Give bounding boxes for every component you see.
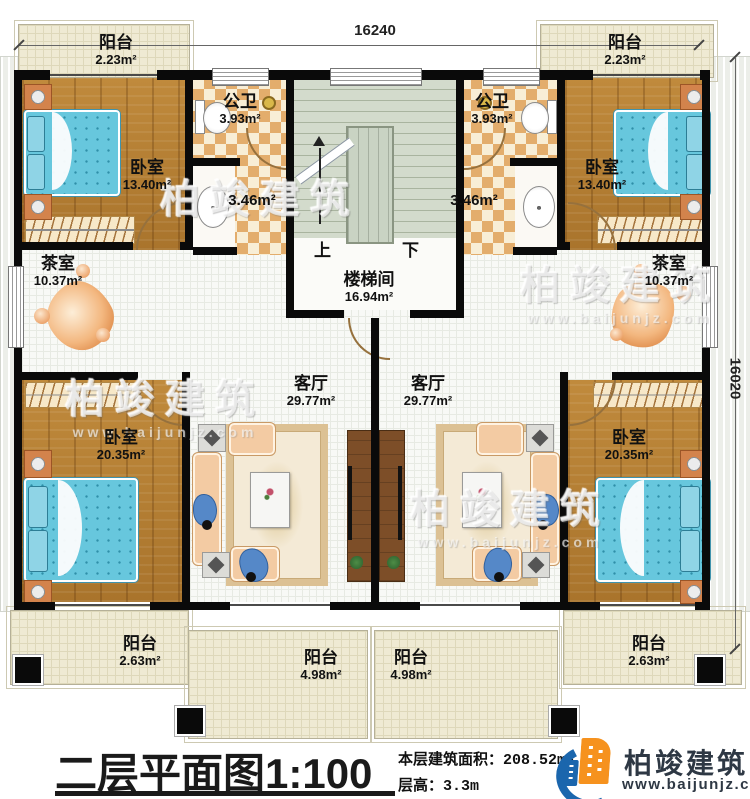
stair-up-label: 上 (314, 236, 331, 261)
label-bedroom-bottom-right: 卧室20.35m² (605, 428, 653, 462)
room-area: 29.77m² (404, 394, 452, 409)
window (212, 68, 269, 86)
label-balcony-bottom-center-right: 阳台4.98m² (390, 648, 431, 682)
room-name: 卧室 (123, 158, 171, 178)
room-name: 楼梯间 (344, 270, 395, 290)
closet-bottom-left (25, 382, 139, 408)
wall (286, 310, 344, 318)
label-vanity-right: 3.46m² (450, 192, 498, 209)
wall (557, 70, 565, 250)
brand-url: www.baijunjz.com (622, 776, 750, 793)
label-tea-left: 茶室10.37m² (34, 254, 82, 288)
label-balcony-bottom-left: 阳台2.63m² (119, 634, 160, 668)
armchair (228, 422, 276, 456)
person-head (494, 572, 504, 582)
room-area: 3.46m² (450, 192, 498, 209)
toilet-right (521, 102, 549, 134)
wall (14, 372, 138, 380)
nightstand (24, 580, 52, 604)
person-head (202, 520, 212, 530)
wall (193, 158, 240, 166)
pebble (610, 328, 623, 341)
window (702, 266, 718, 348)
logo-building (578, 738, 611, 784)
wall (557, 242, 570, 250)
side-table (198, 424, 226, 452)
room-name: 阳台 (119, 634, 160, 654)
label-bath-left: 公卫3.93m² (219, 92, 260, 126)
room-name: 阳台 (300, 648, 341, 668)
room-name: 客厅 (287, 374, 335, 394)
room-area: 4.98m² (300, 668, 341, 683)
side-table (202, 552, 230, 578)
sink-left (197, 186, 229, 228)
stair-arrow-up-icon (313, 136, 325, 146)
room-area: 13.40m² (123, 178, 171, 193)
pillar (549, 706, 579, 736)
room-name: 茶室 (645, 254, 693, 274)
party-wall (371, 318, 379, 602)
wall (520, 602, 600, 610)
room-name: 卧室 (578, 158, 626, 178)
balcony-bottom-center-right (374, 630, 558, 739)
room-name: 卧室 (605, 428, 653, 448)
room-area: 10.37m² (34, 274, 82, 289)
person-head (246, 572, 256, 582)
pillar (695, 655, 725, 685)
side-table-top (204, 430, 221, 447)
room-area: 2.63m² (119, 654, 160, 669)
sliding-door (230, 604, 330, 606)
floor-height-value: 3.3m (443, 778, 479, 795)
room-name: 公卫 (471, 92, 512, 112)
room-name: 阳台 (604, 33, 645, 53)
label-bedroom-bottom-left: 卧室20.35m² (97, 428, 145, 462)
logo-building-side (563, 760, 579, 786)
room-area: 29.77m² (287, 394, 335, 409)
wall (286, 70, 294, 318)
stair-direction-line (319, 148, 321, 224)
wall (14, 242, 133, 250)
nightstand (24, 450, 52, 478)
plant (387, 556, 400, 569)
side-table-top (532, 430, 549, 447)
wall (14, 602, 55, 610)
label-tea-right: 茶室10.37m² (645, 254, 693, 288)
label-balcony-bottom-right: 阳台2.63m² (628, 634, 669, 668)
nightstand (24, 84, 52, 110)
room-area: 10.37m² (645, 274, 693, 289)
side-table-top (208, 557, 225, 574)
label-bedroom-top-left: 卧室13.40m² (123, 158, 171, 192)
closet-top-left (25, 216, 135, 244)
room-name: 公卫 (219, 92, 260, 112)
room-name: 客厅 (404, 374, 452, 394)
tv-right (398, 466, 402, 540)
sliding-door (593, 74, 700, 76)
room-area: 20.35m² (97, 448, 145, 463)
sliding-door (55, 604, 150, 606)
pebble (96, 328, 110, 342)
title-underline (55, 791, 395, 796)
wall (185, 70, 193, 250)
nightstand (24, 194, 52, 220)
wall (410, 310, 464, 318)
wall (330, 602, 420, 610)
label-living-right: 客厅29.77m² (404, 374, 452, 408)
label-balcony-top-right: 阳台2.23m² (604, 33, 645, 67)
wall (538, 70, 593, 80)
pebble (34, 308, 50, 324)
floor-height-stat: 层高：3.3m (398, 774, 479, 795)
wall (420, 70, 483, 80)
room-area: 2.23m² (604, 53, 645, 68)
wall (510, 158, 557, 166)
room-name: 阳台 (390, 648, 431, 668)
label-vanity-left: 3.46m² (228, 192, 276, 209)
pillow (680, 486, 700, 528)
wall (695, 602, 710, 610)
room-area: 2.63m² (628, 654, 669, 669)
room-area: 3.93m² (219, 112, 260, 127)
side-table (522, 552, 550, 578)
label-bath-right: 公卫3.93m² (471, 92, 512, 126)
room-area: 16.94m² (344, 290, 395, 305)
tv-left (348, 466, 352, 540)
pillow (680, 530, 700, 572)
wall (560, 372, 568, 610)
wall (267, 70, 330, 80)
wall (150, 602, 230, 610)
pillow (28, 530, 48, 572)
room-name: 卧室 (97, 428, 145, 448)
floor-area-label: 本层建筑面积： (398, 751, 503, 768)
sliding-door (50, 74, 157, 76)
window (8, 266, 24, 348)
side-table-top (528, 557, 545, 574)
side-table (526, 424, 554, 452)
sliding-door (600, 604, 695, 606)
floorplan-page: 柏竣建筑 柏竣建筑www.baijunjz.com 柏竣建筑www.baijun… (0, 0, 750, 799)
brand-logo-icon (558, 738, 618, 796)
label-balcony-top-left: 阳台2.23m² (95, 33, 136, 67)
label-bedroom-top-right: 卧室13.40m² (578, 158, 626, 192)
plant (350, 556, 363, 569)
wall (612, 372, 710, 380)
room-area: 3.46m² (228, 192, 276, 209)
label-living-left: 客厅29.77m² (287, 374, 335, 408)
coffee-table (250, 472, 290, 528)
light-fixture (262, 96, 276, 110)
window (330, 68, 422, 86)
dimension-top-value: 16240 (340, 22, 410, 39)
armchair (476, 422, 524, 456)
room-area: 2.23m² (95, 53, 136, 68)
wall (617, 242, 710, 250)
wall (193, 247, 237, 255)
coffee-table (462, 472, 502, 528)
floor-area-stat: 本层建筑面积：208.52m² (398, 748, 575, 769)
label-balcony-bottom-center-left: 阳台4.98m² (300, 648, 341, 682)
pillow (27, 116, 45, 152)
room-name: 阳台 (628, 634, 669, 654)
pillar (13, 655, 43, 685)
stair-down-label: 下 (402, 236, 419, 261)
wall (513, 247, 557, 255)
room-area: 3.93m² (471, 112, 512, 127)
room-area: 4.98m² (390, 668, 431, 683)
room-name: 阳台 (95, 33, 136, 53)
sliding-door (420, 604, 520, 606)
room-name: 茶室 (34, 254, 82, 274)
pillow (28, 486, 48, 528)
balcony-bottom-center-left (188, 630, 368, 739)
sink-right (523, 186, 555, 228)
person-head (538, 520, 548, 530)
window (483, 68, 540, 86)
pillow (27, 154, 45, 190)
room-area: 13.40m² (578, 178, 626, 193)
wall (182, 372, 190, 610)
pillar (175, 706, 205, 736)
floor-height-label: 层高： (398, 777, 443, 794)
room-area: 20.35m² (605, 448, 653, 463)
dimension-right-value: 16020 (727, 349, 744, 409)
label-stairwell: 楼梯间16.94m² (344, 270, 395, 304)
wall (180, 242, 193, 250)
